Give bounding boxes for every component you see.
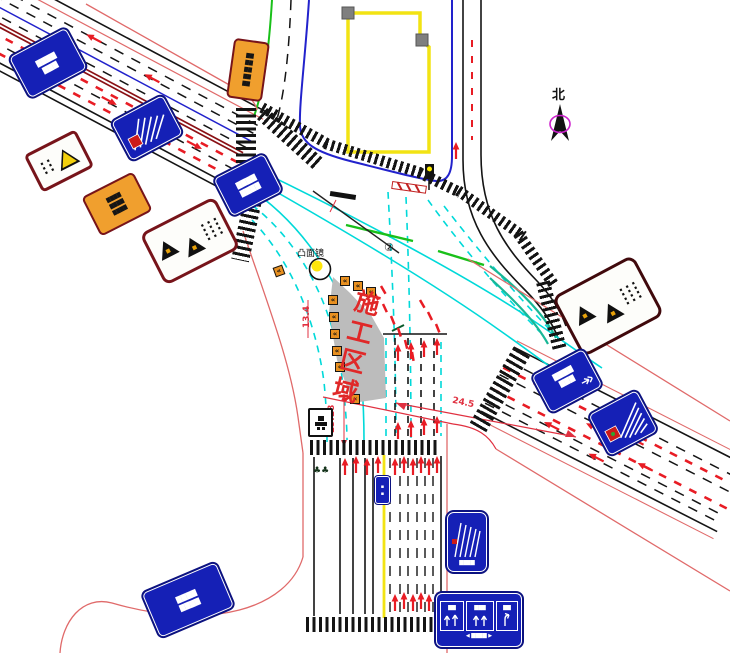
triangle-dot: [165, 248, 170, 253]
sign-text: ▇▇: [242, 80, 250, 87]
warning-triangle-icon: [598, 299, 624, 323]
overhead-panel: ▇▇: [440, 601, 464, 631]
crosswalk-south-bottom: [306, 617, 442, 632]
warning-triangle-icon: [154, 236, 180, 260]
lane-assignment-sign-south: ▇▇▇▇: [447, 512, 487, 572]
overhead-guide-sign-south: ▇▇ ▇▇▇ ▇▇ ◀ ▇▇▇▇ ▶: [436, 593, 522, 647]
sign-caption: ▇▇▇▇: [459, 560, 474, 566]
triangle-dot: [191, 245, 196, 250]
overhead-panel: ▇▇▇: [466, 601, 494, 631]
sign-text: ▇▇: [245, 60, 253, 67]
sign-text-columns: ▪▪▪▪ ▪▪▪▪ ▪▪▪▪: [618, 281, 644, 308]
sign-text: ▪: [381, 491, 384, 497]
warning-triangle-icon: [180, 233, 206, 257]
crosswalk-south-top: [310, 440, 438, 455]
overhead-panel: ▇▇: [496, 601, 518, 631]
convex-mirror-label: 凸面镜: [297, 246, 324, 259]
lane-fan-graphic: [451, 519, 483, 559]
tree-symbols: ♣♣: [313, 466, 329, 476]
construction-marker: «: [329, 312, 339, 322]
median-sign-small: ▪ ▪: [375, 476, 390, 504]
utility-glyph: [314, 415, 328, 431]
convex-mirror-symbol: [310, 259, 331, 280]
overhead-panels: ▇▇ ▇▇▇ ▇▇: [440, 601, 518, 631]
note-number-glyph: ②: [384, 241, 394, 254]
sign-text: ▇▇: [246, 53, 254, 60]
warning-triangle-icon: [52, 144, 80, 171]
panel-arrows: [442, 611, 462, 627]
overhead-bottom-text: ◀ ▇▇▇▇ ▶: [466, 633, 492, 639]
warning-triangle-icon: [570, 301, 596, 325]
triangle-dot: [610, 311, 615, 316]
sign-text: ▪: [381, 484, 384, 490]
traffic-construction-plan: ②: [0, 0, 730, 653]
building-outline: [342, 7, 429, 152]
sign-text-columns: ▪▪▪▪ ▪▪▪▪ ▪▪▪▪: [199, 216, 225, 242]
sign-text: ▇▇: [244, 66, 252, 73]
sign-text-columns: ▪▪▪ ▪▪▪: [39, 157, 57, 176]
construction-marker: «: [340, 276, 350, 286]
utility-sign-south-small: [308, 408, 333, 437]
triangle-fill: [56, 148, 77, 168]
panel-arrows: [498, 611, 516, 627]
triangle-dot: [582, 313, 587, 318]
north-arrow: [550, 104, 570, 141]
arrow-icon: [580, 374, 594, 387]
construction-marker: «: [328, 295, 338, 305]
sign-text: ▇▇: [243, 73, 251, 80]
dimension-13-4: 13.4: [302, 306, 312, 328]
south-approach-band: [395, 338, 441, 439]
panel-arrows: [469, 611, 491, 627]
north-label: 北: [552, 84, 565, 103]
